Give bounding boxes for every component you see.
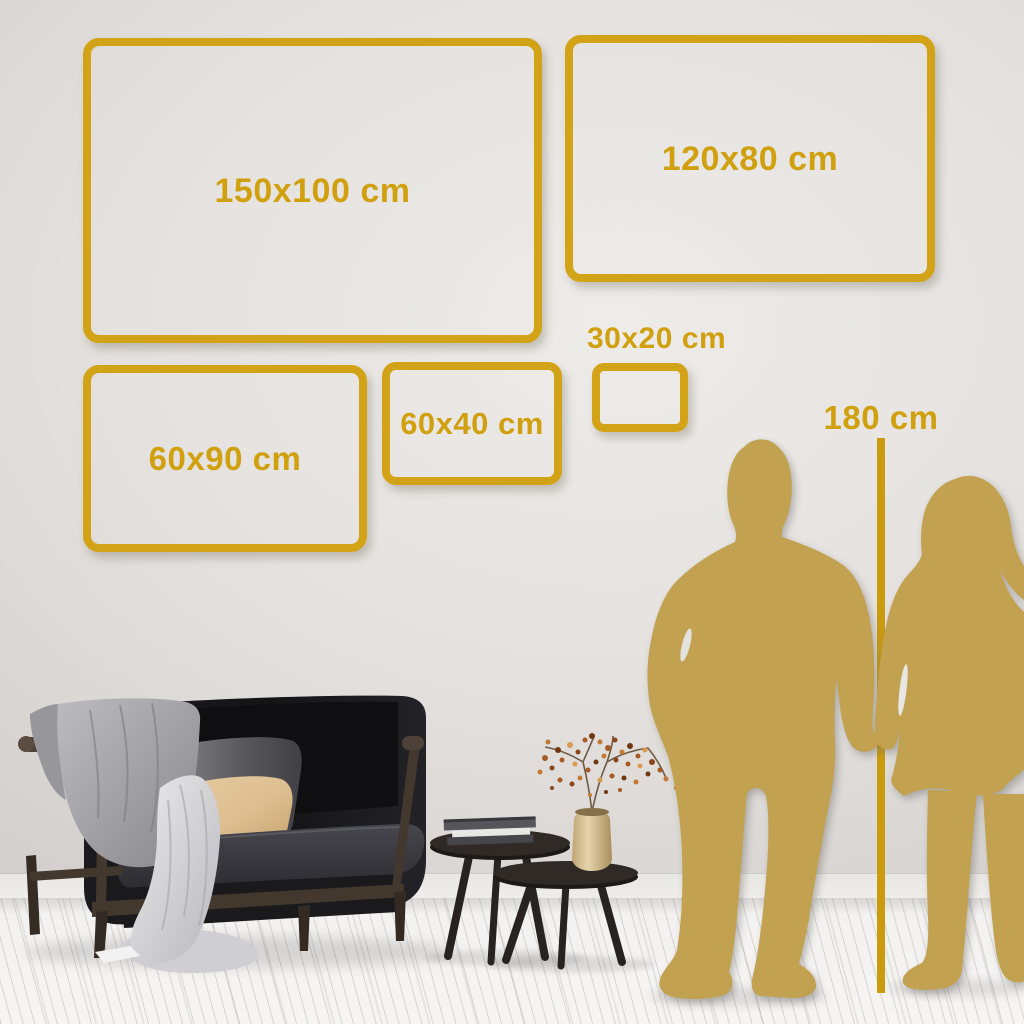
size-guide-scene: 150x100 cm 120x80 cm 60x90 cm 60x40 cm 3… [0, 0, 1024, 1024]
people-silhouettes [0, 0, 1024, 1024]
man-silhouette [647, 439, 878, 999]
woman-silhouette [875, 476, 1024, 796]
woman-front-leg [903, 790, 977, 990]
woman-back-leg [983, 794, 1024, 982]
